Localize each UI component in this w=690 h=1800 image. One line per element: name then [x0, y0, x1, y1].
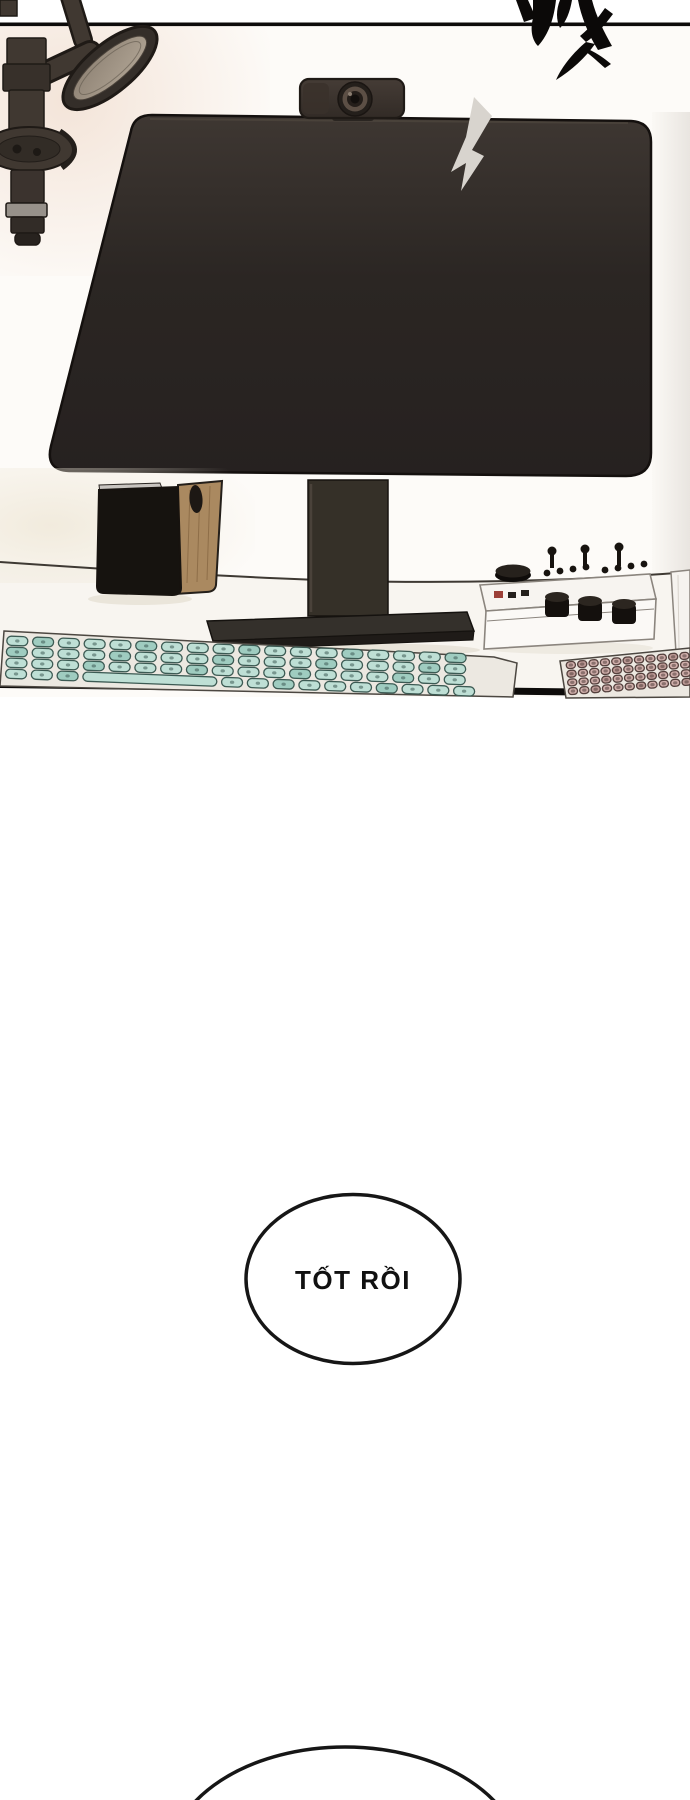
mixer-dark-button: [521, 590, 529, 596]
monitor-screen: [50, 115, 651, 476]
webcam-side-shade: [303, 83, 329, 114]
mixer-shaft-cap: [615, 543, 624, 552]
scene-canvas: TỐT RỒI: [0, 0, 690, 1800]
mixer-dark-button: [508, 592, 516, 598]
boom-mount-corner: [0, 0, 17, 16]
monitor: [50, 97, 651, 476]
mixer-red-button: [494, 591, 503, 598]
mixer-big-knob: [496, 565, 531, 578]
mic-light-band: [6, 203, 47, 217]
mixer-shaft-cap: [581, 545, 590, 554]
webcam-lens-pupil: [351, 95, 360, 104]
stand-column: [308, 480, 388, 616]
webcam: [300, 79, 404, 121]
wall-right-shade: [652, 112, 690, 574]
speaker-front: [97, 487, 181, 595]
speech-bubble: TỐT RỒI: [246, 1195, 460, 1364]
webcam-lens-glint: [348, 92, 352, 96]
speaker: [97, 481, 222, 595]
comic-panel: TỐT RỒI: [0, 0, 690, 1800]
mic-tip: [15, 233, 40, 245]
speech-bubble-text: TỐT RỒI: [295, 1265, 411, 1295]
mixer-shaft-cap: [548, 547, 557, 556]
